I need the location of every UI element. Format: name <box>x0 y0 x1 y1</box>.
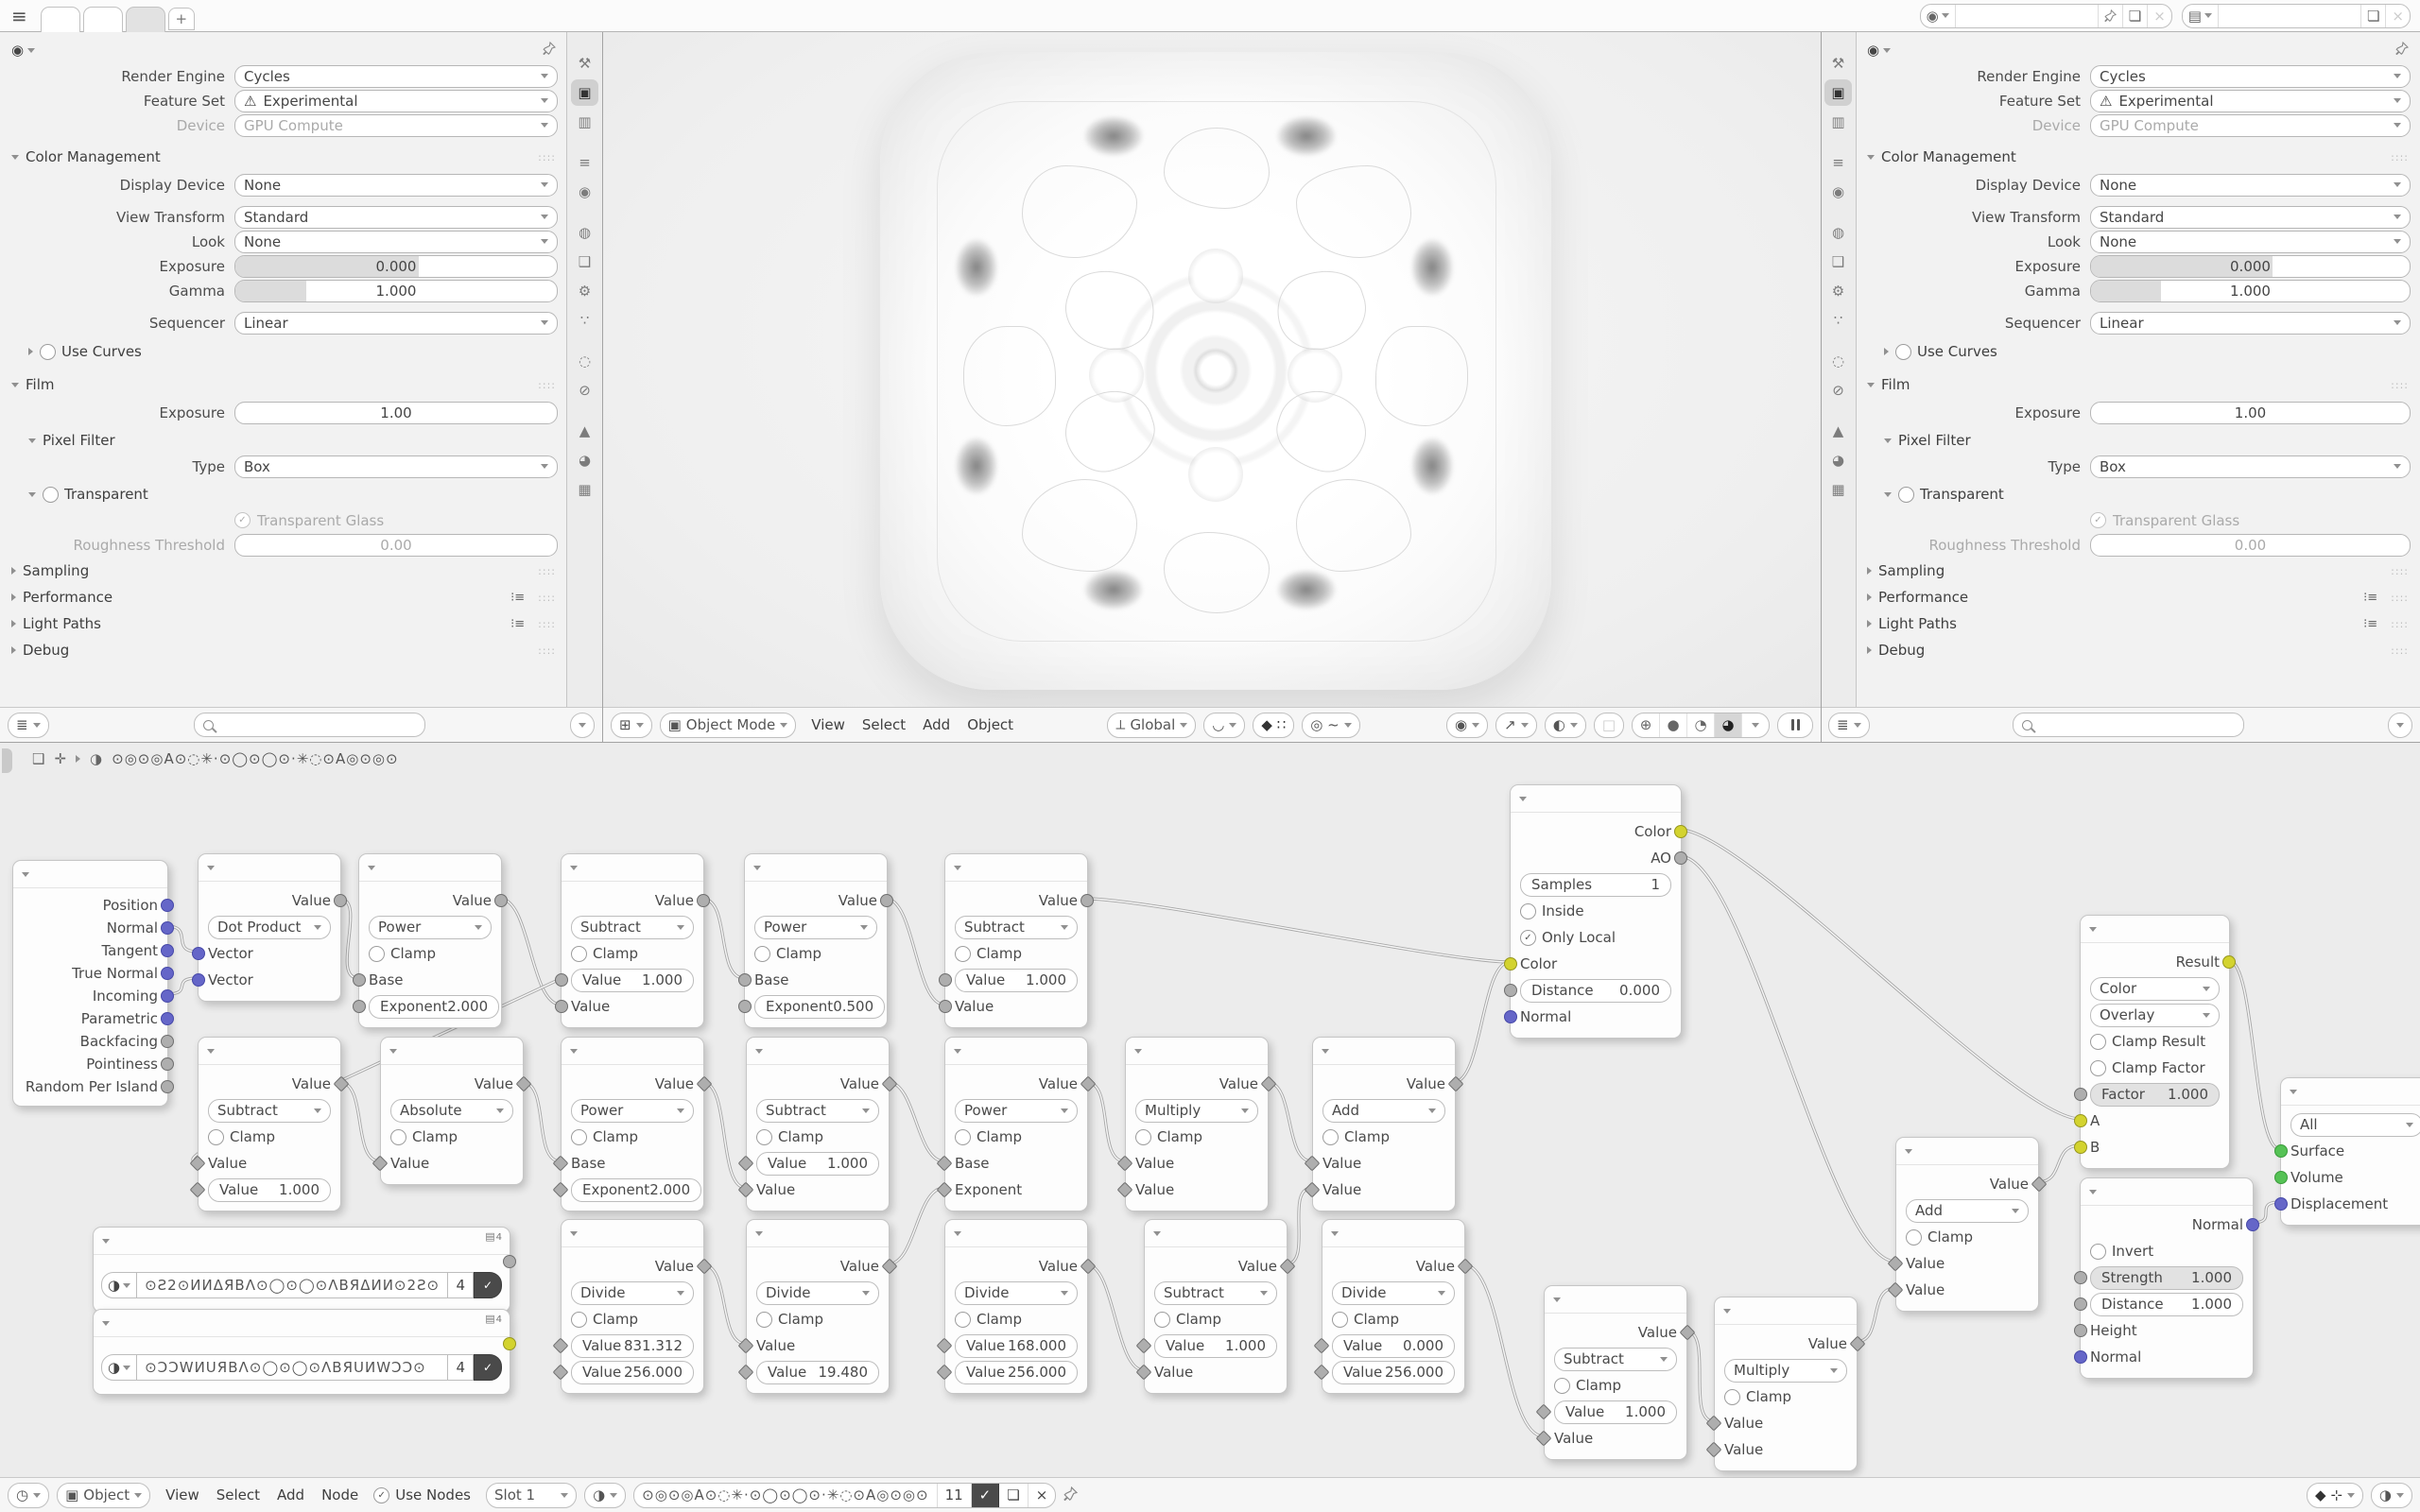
node-operation-dropdown[interactable]: Power <box>955 1099 1078 1123</box>
presets-icon[interactable]: ⁝≡ <box>2363 591 2377 605</box>
dropdown-render-engine[interactable]: Cycles <box>2090 65 2411 88</box>
node-operation-dropdown[interactable]: All <box>2290 1113 2420 1137</box>
node-checkbox-clamp[interactable] <box>955 1129 971 1145</box>
collapsed-panel-use-curves[interactable]: Use Curves <box>0 338 567 365</box>
node-header[interactable] <box>945 1220 1087 1247</box>
section-checkbox[interactable] <box>1898 487 1914 503</box>
node-math-add-1[interactable]: ValueAddClampValueValue <box>1312 1037 1456 1211</box>
node-operation-dropdown[interactable]: Overlay <box>2090 1004 2220 1027</box>
output-socket-gray[interactable] <box>161 1057 174 1071</box>
node-header[interactable] <box>562 1038 703 1065</box>
node-operation-dropdown[interactable]: Subtract <box>955 916 1078 939</box>
output-socket-yellow[interactable] <box>2222 955 2236 969</box>
node-checkbox-clamp[interactable] <box>571 946 587 962</box>
snap-target-dropdown[interactable]: ◡ <box>1203 713 1245 738</box>
node-value-field-value[interactable]: Value1.000 <box>208 1178 331 1202</box>
node-checkbox-clamp[interactable] <box>1135 1129 1151 1145</box>
shading-rendered-button[interactable]: ◕ <box>1715 713 1742 737</box>
value-field-gamma[interactable]: 1.000 <box>2090 280 2411 302</box>
editor-type-button-shader[interactable]: ◷ <box>8 1483 49 1508</box>
section-header-transparent[interactable]: Transparent <box>0 482 567 507</box>
properties-tab-material[interactable]: ◕ <box>571 447 598 473</box>
output-socket-blue[interactable] <box>161 1012 174 1025</box>
dropdown-type[interactable]: Box <box>234 455 558 478</box>
node-header[interactable]: ▤4 <box>94 1228 510 1255</box>
overlays-dropdown[interactable]: ◐ <box>1545 713 1586 738</box>
node-value-field-strength[interactable]: Strength1.000 <box>2090 1266 2243 1290</box>
xray-toggle[interactable]: □ <box>1594 713 1624 738</box>
properties-tab-texture[interactable]: ▦ <box>1824 476 1852 503</box>
filter-options-chevron[interactable] <box>2388 713 2412 738</box>
node-checkbox-clamp[interactable] <box>955 1312 971 1328</box>
node-math-subtract-1[interactable]: ValueSubtractClampValue1.000Value <box>561 853 704 1028</box>
output-socket-gray[interactable] <box>697 894 710 907</box>
input-socket-yellow[interactable] <box>1504 957 1517 971</box>
node-checkbox-clamp-factor[interactable] <box>2090 1060 2106 1076</box>
users-count[interactable]: 4 <box>448 1354 474 1381</box>
node-math-power-3[interactable]: ValuePowerClampBaseExponent2.000 <box>561 1037 704 1211</box>
pin-icon[interactable] <box>543 42 556 59</box>
node-menu-view[interactable]: View <box>165 1486 199 1503</box>
panel-checkbox[interactable] <box>1895 344 1911 360</box>
properties-tab-texture[interactable]: ▦ <box>571 476 598 503</box>
presets-icon[interactable]: ⁝≡ <box>510 617 525 631</box>
node-header[interactable] <box>945 854 1087 882</box>
input-socket-gray[interactable] <box>2074 1324 2087 1337</box>
properties-tab-tool[interactable]: ⚒ <box>1824 50 1852 77</box>
node-header[interactable] <box>945 1038 1087 1065</box>
node-header[interactable] <box>1896 1138 2038 1165</box>
properties-tab-constraints[interactable]: ⊘ <box>571 377 598 404</box>
input-socket-blue[interactable] <box>2274 1197 2288 1211</box>
node-ambient-occlusion[interactable]: ColorAOSamples1Inside✓Only LocalColorDis… <box>1510 784 1682 1039</box>
workspace-tab-1[interactable] <box>41 7 80 32</box>
node-math-divide-1[interactable]: ValueDivideClampValue831.312Value256.000 <box>561 1219 704 1394</box>
value-field-roughness-threshold[interactable]: 0.00 <box>234 534 558 557</box>
collapsed-panel-use-curves[interactable]: Use Curves <box>1856 338 2420 365</box>
node-value-field-value[interactable]: Value1.000 <box>1154 1334 1277 1358</box>
node-value-field-distance[interactable]: Distance0.000 <box>1520 979 1671 1003</box>
output-socket-gray[interactable] <box>503 1255 516 1268</box>
properties-tab-view-layer[interactable]: ≡ <box>571 149 598 176</box>
dropdown-view-transform[interactable]: Standard <box>234 206 558 229</box>
input-socket-blue[interactable] <box>192 973 205 987</box>
collapsed-panel-sampling[interactable]: Sampling:::: <box>0 558 567 584</box>
value-field-gamma[interactable]: 1.000 <box>234 280 558 302</box>
close-icon[interactable]: × <box>2385 5 2410 27</box>
datablock-name-field[interactable]: ⊙ƆƆWИUЯВΛ⊙◯⊙◯⊙ΛВЯUИWƆƆ⊙ <box>137 1354 448 1381</box>
input-socket-gray[interactable] <box>738 973 752 987</box>
node-header[interactable] <box>562 1220 703 1247</box>
output-socket-blue[interactable] <box>161 944 174 957</box>
unlink-material-icon[interactable]: × <box>1028 1484 1056 1507</box>
properties-tab-tool[interactable]: ⚒ <box>571 50 598 77</box>
fake-user-shield-icon[interactable]: ✓ <box>972 1484 1000 1507</box>
properties-tab-scene[interactable]: ◉ <box>571 179 598 205</box>
checkbox-transparent-glass[interactable]: ✓ <box>2090 512 2106 528</box>
node-checkbox-clamp-result[interactable] <box>2090 1034 2106 1050</box>
node-header[interactable] <box>747 1038 889 1065</box>
node-operation-dropdown[interactable]: Color <box>2090 977 2220 1001</box>
input-socket-gray[interactable] <box>555 1000 568 1013</box>
section-header-color-management[interactable]: Color Management:::: <box>1856 145 2420 169</box>
node-checkbox-clamp[interactable] <box>1154 1312 1170 1328</box>
node-operation-dropdown[interactable]: Subtract <box>1554 1348 1677 1371</box>
shading-wireframe-button[interactable]: ⊕ <box>1633 713 1660 737</box>
properties-tab-material[interactable]: ◕ <box>1824 447 1852 473</box>
input-socket-gray[interactable] <box>2074 1088 2087 1101</box>
material-users-count[interactable]: 11 <box>938 1484 972 1507</box>
properties-tab-world[interactable]: ◍ <box>571 219 598 246</box>
shader-type-dropdown[interactable]: ▣ Object <box>57 1483 150 1508</box>
node-value-field-exponent[interactable]: Exponent2.000 <box>369 995 499 1019</box>
node-operation-dropdown[interactable]: Multiply <box>1724 1359 1847 1383</box>
editor-type-button-viewport[interactable]: ⊞ <box>611 713 652 738</box>
node-checkbox-clamp[interactable] <box>754 946 770 962</box>
node-operation-dropdown[interactable]: Subtract <box>1154 1281 1277 1305</box>
slot-dropdown[interactable]: Slot 1 <box>486 1483 577 1508</box>
input-socket-gray[interactable] <box>2074 1271 2087 1284</box>
node-header[interactable] <box>1715 1297 1857 1325</box>
section-header-pixel-filter[interactable]: Pixel Filter <box>0 428 567 453</box>
node-header[interactable] <box>199 1038 340 1065</box>
node-value-field-exponent[interactable]: Exponent0.500 <box>754 995 885 1019</box>
checkbox-transparent-glass[interactable]: ✓ <box>234 512 251 528</box>
dropdown-sequencer[interactable]: Linear <box>234 312 558 335</box>
material-name-field[interactable]: ⊙◎⊙◎A⊙◌✳·⊙◯⊙◯⊙·✳◌⊙A◎⊙◎⊙ <box>634 1484 937 1507</box>
editor-type-button-properties[interactable]: ≣ <box>1828 713 1870 738</box>
node-checkbox-clamp[interactable] <box>1554 1378 1570 1394</box>
node-math-subtract-3[interactable]: ValueSubtractClampValueValue1.000 <box>198 1037 341 1211</box>
node-canvas[interactable]: ❑ ✛ ◑ ⊙◎⊙◎A⊙◌✳·⊙◯⊙◯⊙·✳◌⊙A◎⊙◎⊙ PositionNo… <box>0 743 2420 1478</box>
output-socket-gray[interactable] <box>494 894 508 907</box>
input-socket-blue[interactable] <box>1504 1010 1517 1023</box>
node-checkbox-only-local[interactable]: ✓ <box>1520 930 1536 946</box>
node-math-subtract-2[interactable]: ValueSubtractClampValue1.000Value <box>944 853 1088 1028</box>
workspace-tab-3[interactable] <box>126 7 165 32</box>
node-checkbox-invert[interactable] <box>2090 1244 2106 1260</box>
input-socket-gray[interactable] <box>738 1000 752 1013</box>
output-socket-gray[interactable] <box>880 894 893 907</box>
node-operation-dropdown[interactable]: Subtract <box>571 916 694 939</box>
section-checkbox[interactable] <box>43 487 59 503</box>
section-header-pixel-filter[interactable]: Pixel Filter <box>1856 428 2420 453</box>
output-socket-gray[interactable] <box>161 1035 174 1048</box>
node-math-multiply-2[interactable]: ValueMultiplyClampValueValue <box>1714 1297 1858 1471</box>
node-header[interactable] <box>199 854 340 882</box>
properties-tab-object[interactable]: ❑ <box>1824 249 1852 275</box>
node-operation-dropdown[interactable]: Divide <box>955 1281 1078 1305</box>
node-value-field-value[interactable]: Value1.000 <box>955 969 1078 992</box>
properties-tab-render[interactable]: ▣ <box>1824 79 1852 106</box>
input-socket-blue[interactable] <box>2074 1350 2087 1364</box>
value-field-exposure[interactable]: 0.000 <box>2090 255 2411 278</box>
node-value-field-value[interactable]: Value1.000 <box>1554 1400 1677 1424</box>
section-header-transparent[interactable]: Transparent <box>1856 482 2420 507</box>
node-math-dot-product[interactable]: ValueDot ProductVectorVector <box>198 853 341 1002</box>
properties-tab-particles[interactable]: ∵ <box>571 307 598 334</box>
input-socket-green[interactable] <box>2274 1144 2288 1158</box>
snap-toggle[interactable]: ◆ ∷ <box>1253 713 1294 738</box>
search-input[interactable] <box>2013 713 2244 737</box>
input-socket-gray[interactable] <box>353 973 366 987</box>
node-value-field-factor[interactable]: Factor1.000 <box>2090 1083 2220 1107</box>
node-checkbox-clamp[interactable] <box>571 1312 587 1328</box>
node-math-multiply-1[interactable]: ValueMultiplyClampValueValue <box>1125 1037 1269 1211</box>
node-header[interactable] <box>13 861 167 888</box>
node-operation-dropdown[interactable]: Power <box>754 916 877 939</box>
new-workspace-tab-button[interactable]: + <box>168 8 195 30</box>
node-header[interactable]: ▤4 <box>94 1310 510 1337</box>
presets-icon[interactable]: ⁝≡ <box>510 591 525 605</box>
section-header-color-management[interactable]: Color Management:::: <box>0 145 567 169</box>
browse-image-icon[interactable]: ◑ <box>101 1354 137 1381</box>
node-header[interactable] <box>1145 1220 1287 1247</box>
properties-tab-output[interactable]: ▥ <box>571 109 598 135</box>
node-operation-dropdown[interactable]: Subtract <box>208 1099 331 1123</box>
copy-icon[interactable]: ❏ <box>2122 5 2147 27</box>
collapsed-panel-sampling[interactable]: Sampling:::: <box>1856 558 2420 584</box>
node-value-field-value[interactable]: Value256.000 <box>955 1361 1078 1384</box>
shading-material-button[interactable]: ◔ <box>1687 713 1715 737</box>
node-value-field-value[interactable]: Value0.000 <box>1332 1334 1455 1358</box>
properties-tab-modifiers[interactable]: ⚙ <box>571 278 598 304</box>
collapsed-panel-light-paths[interactable]: Light Paths⁝≡:::: <box>0 610 567 637</box>
node-value-field-value[interactable]: Value256.000 <box>1332 1361 1455 1384</box>
scene-icon[interactable]: ◉ <box>1921 5 1956 27</box>
dropdown-feature-set[interactable]: ⚠Experimental <box>2090 90 2411 112</box>
node-operation-dropdown[interactable]: Multiply <box>1135 1099 1258 1123</box>
use-nodes-check-icon[interactable]: ✓ <box>373 1487 389 1503</box>
properties-tab-world[interactable]: ◍ <box>1824 219 1852 246</box>
viewport-menu-view[interactable]: View <box>811 716 845 733</box>
node-checkbox-inside[interactable] <box>1520 903 1536 919</box>
node-header[interactable] <box>562 854 703 882</box>
node-math-absolute[interactable]: ValueAbsoluteClampValue <box>380 1037 524 1185</box>
node-header[interactable] <box>2081 916 2229 943</box>
node-value-field-value[interactable]: Value1.000 <box>756 1152 879 1176</box>
node-header[interactable] <box>747 1220 889 1247</box>
node-bump[interactable]: NormalInvertStrength1.000Distance1.000He… <box>2080 1177 2254 1379</box>
node-value-field-exponent[interactable]: Exponent2.000 <box>571 1178 701 1202</box>
node-checkbox-clamp[interactable] <box>1724 1389 1740 1405</box>
output-socket-gray[interactable] <box>334 894 347 907</box>
output-socket-blue[interactable] <box>161 921 174 935</box>
node-header[interactable] <box>2281 1078 2420 1106</box>
node-value-field-value[interactable]: Value1.000 <box>571 969 694 992</box>
value-field-exposure[interactable]: 0.000 <box>234 255 558 278</box>
node-math-divide-4[interactable]: ValueDivideClampValue0.000Value256.000 <box>1322 1219 1465 1394</box>
properties-tab-render[interactable]: ▣ <box>571 79 598 106</box>
node-value-field-value[interactable]: Value831.312 <box>571 1334 694 1358</box>
value-field-roughness-threshold[interactable]: 0.00 <box>2090 534 2411 557</box>
pause-render-button[interactable] <box>1777 713 1813 738</box>
node-operation-dropdown[interactable]: Power <box>571 1099 694 1123</box>
node-operation-dropdown[interactable]: Divide <box>756 1281 879 1305</box>
node-checkbox-clamp[interactable] <box>1332 1312 1348 1328</box>
fake-user-shield-icon[interactable]: ✓ <box>474 1354 502 1381</box>
node-operation-dropdown[interactable]: Divide <box>1332 1281 1455 1305</box>
node-header[interactable] <box>1313 1038 1455 1065</box>
input-socket-yellow[interactable] <box>2074 1141 2087 1154</box>
dropdown-sequencer[interactable]: Linear <box>2090 312 2411 335</box>
node-checkbox-clamp[interactable] <box>955 946 971 962</box>
node-checkbox-clamp[interactable] <box>571 1129 587 1145</box>
node-math-subtract-5[interactable]: ValueSubtractClampValue1.000Value <box>1144 1219 1288 1394</box>
input-socket-green[interactable] <box>2274 1171 2288 1184</box>
node-operation-dropdown[interactable]: Subtract <box>756 1099 879 1123</box>
node-math-power-1[interactable]: ValuePowerClampBaseExponent2.000 <box>358 853 502 1028</box>
viewport-menu-add[interactable]: Add <box>923 716 950 733</box>
editor-type-button-properties[interactable]: ≣ <box>8 713 49 738</box>
output-socket-yellow[interactable] <box>1674 825 1687 838</box>
collapsed-panel-light-paths[interactable]: Light Paths⁝≡:::: <box>1856 610 2420 637</box>
properties-tab-object[interactable]: ❑ <box>571 249 598 275</box>
transform-orientation-dropdown[interactable]: ⟂ Global <box>1107 713 1196 738</box>
node-header[interactable] <box>2081 1178 2253 1206</box>
properties-tab-scene[interactable]: ◉ <box>1824 179 1852 205</box>
node-menu-select[interactable]: Select <box>216 1486 260 1503</box>
node-menu-node[interactable]: Node <box>321 1486 358 1503</box>
node-math-divide-3[interactable]: ValueDivideClampValue168.000Value256.000 <box>944 1219 1088 1394</box>
node-material-output[interactable]: AllSurfaceVolumeDisplacement <box>2280 1077 2420 1226</box>
properties-tab-data[interactable]: ▲ <box>571 418 598 444</box>
node-math-divide-2[interactable]: ValueDivideClampValueValue19.480 <box>746 1219 890 1394</box>
input-socket-gray[interactable] <box>2074 1297 2087 1311</box>
properties-tab-physics[interactable]: ◌ <box>571 348 598 374</box>
mode-dropdown[interactable]: ▣ Object Mode <box>660 713 797 738</box>
output-socket-blue[interactable] <box>2246 1218 2259 1231</box>
input-socket-gray[interactable] <box>939 1000 952 1013</box>
view-layer-selector[interactable]: ▤ ❏ × <box>2182 4 2411 28</box>
section-header-film[interactable]: Film:::: <box>0 372 567 397</box>
output-socket-blue[interactable] <box>161 967 174 980</box>
node-image-data-1[interactable]: ▤4◑⊙Ƨ2⊙ИИΔЯВΛ⊙◯⊙◯⊙ΛВЯΔИИ⊙2Ƨ⊙4✓ <box>93 1227 510 1313</box>
output-socket-gray[interactable] <box>1674 851 1687 865</box>
output-socket-gray[interactable] <box>161 1080 174 1093</box>
node-math-add-2[interactable]: ValueAddClampValueValue <box>1895 1137 2039 1312</box>
overlay-dropdown[interactable]: ◑ <box>2371 1483 2412 1508</box>
node-operation-dropdown[interactable]: Add <box>1322 1099 1445 1123</box>
shading-options-chevron[interactable] <box>1742 713 1769 737</box>
node-header[interactable] <box>381 1038 523 1065</box>
node-value-field-value[interactable]: Value19.480 <box>756 1361 879 1384</box>
scene-name-field[interactable] <box>1956 5 2098 27</box>
users-count[interactable]: 4 <box>448 1272 474 1298</box>
node-header[interactable] <box>359 854 501 882</box>
node-header[interactable] <box>1126 1038 1268 1065</box>
collapsed-panel-performance[interactable]: Performance⁝≡:::: <box>1856 584 2420 610</box>
proportional-editing-dropdown[interactable]: ◎ ~ <box>1302 713 1359 738</box>
node-value-field-samples[interactable]: Samples1 <box>1520 873 1671 897</box>
filter-options-chevron[interactable] <box>570 713 595 738</box>
scene-selector[interactable]: ◉ ❏ × <box>1920 4 2172 28</box>
node-operation-dropdown[interactable]: Add <box>1906 1199 2029 1223</box>
output-socket-yellow[interactable] <box>503 1337 516 1350</box>
workspace-tab-2[interactable] <box>83 7 123 32</box>
node-value-field-distance[interactable]: Distance1.000 <box>2090 1293 2243 1316</box>
properties-tab-constraints[interactable]: ⊘ <box>1824 377 1852 404</box>
node-value-field-value[interactable]: Value256.000 <box>571 1361 694 1384</box>
view-layer-name-field[interactable] <box>2219 5 2360 27</box>
search-input[interactable] <box>194 713 425 737</box>
input-socket-gray[interactable] <box>555 973 568 987</box>
node-checkbox-clamp[interactable] <box>1906 1229 1922 1246</box>
properties-tab-output[interactable]: ▥ <box>1824 109 1852 135</box>
presets-icon[interactable]: ⁝≡ <box>2363 617 2377 631</box>
shader-node-editor[interactable]: ❑ ✛ ◑ ⊙◎⊙◎A⊙◌✳·⊙◯⊙◯⊙·✳◌⊙A◎⊙◎⊙ PositionNo… <box>0 743 2420 1512</box>
node-checkbox-clamp[interactable] <box>390 1129 406 1145</box>
dropdown-device[interactable]: GPU Compute <box>2090 114 2411 137</box>
node-checkbox-clamp[interactable] <box>208 1129 224 1145</box>
dropdown-look[interactable]: None <box>234 231 558 253</box>
dropdown-feature-set[interactable]: ⚠Experimental <box>234 90 558 112</box>
node-value-field-value[interactable]: Value168.000 <box>955 1334 1078 1358</box>
dropdown-display-device[interactable]: None <box>2090 174 2411 197</box>
dropdown-device[interactable]: GPU Compute <box>234 114 558 137</box>
new-material-copy-icon[interactable]: ❏ <box>999 1484 1028 1507</box>
properties-tab-particles[interactable]: ∵ <box>1824 307 1852 334</box>
dropdown-view-transform[interactable]: Standard <box>2090 206 2411 229</box>
collapsed-panel-debug[interactable]: Debug:::: <box>1856 637 2420 663</box>
properties-tab-data[interactable]: ▲ <box>1824 418 1852 444</box>
value-field-exposure[interactable]: 1.00 <box>2090 402 2411 424</box>
node-operation-dropdown[interactable]: Dot Product <box>208 916 331 939</box>
viewport-menu-select[interactable]: Select <box>862 716 906 733</box>
gizmos-dropdown[interactable]: ↗ <box>1495 713 1537 738</box>
node-math-subtract-6[interactable]: ValueSubtractClampValue1.000Value <box>1544 1285 1687 1460</box>
fake-user-shield-icon[interactable]: ✓ <box>474 1272 502 1298</box>
app-menu-icon[interactable]: ≡ <box>11 5 27 27</box>
input-socket-gray[interactable] <box>939 973 952 987</box>
dropdown-type[interactable]: Box <box>2090 455 2411 478</box>
shading-solid-button[interactable]: ● <box>1660 713 1687 737</box>
node-checkbox-clamp[interactable] <box>756 1312 772 1328</box>
browse-material-button[interactable]: ◑ <box>584 1483 626 1508</box>
node-mix-color[interactable]: ResultColorOverlayClamp ResultClamp Fact… <box>2080 915 2230 1169</box>
panel-checkbox[interactable] <box>40 344 56 360</box>
output-socket-blue[interactable] <box>161 899 174 912</box>
section-header-film[interactable]: Film:::: <box>1856 372 2420 397</box>
view-layer-icon[interactable]: ▤ <box>2183 5 2219 27</box>
dropdown-display-device[interactable]: None <box>234 174 558 197</box>
node-header[interactable] <box>1511 785 1681 813</box>
datablock-name-field[interactable]: ⊙Ƨ2⊙ИИΔЯВΛ⊙◯⊙◯⊙ΛВЯΔИИ⊙2Ƨ⊙ <box>137 1272 448 1298</box>
node-menu-add[interactable]: Add <box>277 1486 304 1503</box>
pin-icon[interactable] <box>1063 1486 1078 1504</box>
output-socket-gray[interactable] <box>1080 894 1094 907</box>
input-socket-yellow[interactable] <box>2074 1114 2087 1127</box>
node-header[interactable] <box>1545 1286 1686 1314</box>
output-socket-blue[interactable] <box>161 989 174 1003</box>
close-icon[interactable]: × <box>2147 5 2171 27</box>
node-geometry[interactable]: PositionNormalTangentTrue NormalIncoming… <box>12 860 168 1107</box>
input-socket-gray[interactable] <box>1504 984 1517 997</box>
input-socket-blue[interactable] <box>192 947 205 960</box>
node-math-power-2[interactable]: ValuePowerClampBaseExponent0.500 <box>744 853 888 1028</box>
input-socket-gray[interactable] <box>353 1000 366 1013</box>
node-checkbox-clamp[interactable] <box>369 946 385 962</box>
use-nodes-checkbox[interactable]: ✓ Use Nodes <box>373 1486 471 1503</box>
node-header[interactable] <box>745 854 887 882</box>
collapsed-panel-debug[interactable]: Debug:::: <box>0 637 567 663</box>
node-operation-dropdown[interactable]: Power <box>369 916 492 939</box>
copy-icon[interactable]: ❏ <box>2360 5 2385 27</box>
dropdown-render-engine[interactable]: Cycles <box>234 65 558 88</box>
node-header[interactable] <box>1322 1220 1464 1247</box>
viewport-3d[interactable]: ⊞ ▣ Object Mode ViewSelectAddObject ⟂ Gl… <box>603 31 1821 742</box>
properties-tab-modifiers[interactable]: ⚙ <box>1824 278 1852 304</box>
